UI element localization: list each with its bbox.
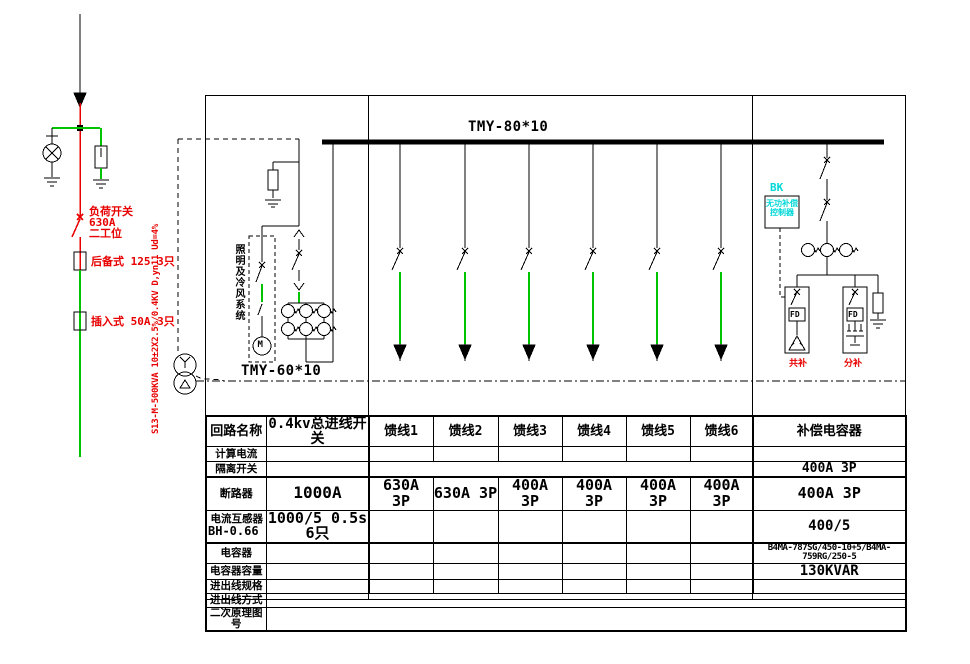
electrical-one-line-diagram: 负荷开关 630A 二工位 后备式 125 3只 插入式 50A 3只 S13-…: [0, 0, 970, 664]
incoming-main-line: [265, 139, 299, 226]
table-cell: 馈线2: [433, 416, 498, 447]
table-cell: 400A 3P: [753, 462, 906, 477]
isolator-switch-icon: [820, 161, 827, 179]
table-cell: [626, 447, 690, 462]
table-cell: 补偿电容器: [753, 416, 906, 447]
table-cell: [369, 462, 753, 477]
table-row-isolator: 隔离开关 400A 3P: [206, 462, 906, 477]
table-cell: [369, 447, 433, 462]
table-cell: B4MA-787SG/450-10+5/B4MA-759RG/250-5: [753, 543, 906, 563]
table-row-line-spec: 进出线规格: [206, 579, 906, 593]
dashed-links: [178, 139, 905, 381]
switch-icon: [256, 266, 262, 282]
hv-load-switch-icon: [72, 131, 83, 270]
table-cell: [753, 579, 906, 593]
motor-label: M: [258, 340, 263, 350]
table-cell: 馈线5: [626, 416, 690, 447]
table-row-capacitor: 电容器 B4MA-787SG/450-10+5/B4MA-759RG/250-5: [206, 543, 906, 563]
table-cell: [626, 543, 690, 563]
table-cell: [498, 543, 562, 563]
table-cell: 馈线3: [498, 416, 562, 447]
ground-icon: [44, 178, 60, 186]
table-cell: 400A 3P: [690, 477, 753, 510]
table-row-capacity: 电容器容量 130KVAR: [206, 563, 906, 579]
table-cell: [690, 447, 753, 462]
transformer-icon: [174, 354, 196, 394]
surge-arrester-branch: [93, 128, 109, 188]
table-cell: [562, 543, 626, 563]
feeder-circuit-6: [713, 144, 727, 361]
split-capacitor-icon: [846, 324, 864, 345]
hv-incoming-line: [52, 14, 100, 131]
feeder-circuit-5: [649, 144, 663, 361]
table-cell: 400A 3P: [498, 477, 562, 510]
metering-ct-group-icon: [282, 144, 337, 362]
row-label: 隔离开关: [206, 462, 266, 477]
row-label: 二次原理图号: [206, 607, 266, 631]
table-cell: [433, 563, 498, 579]
fuse-backup-label: 后备式 125 3只: [91, 253, 175, 269]
capacitor-pt-branch: [870, 275, 886, 328]
table-cell: [690, 563, 753, 579]
fuse-plugin-label: 插入式 50A 3只: [91, 313, 175, 329]
row-label: 电容器容量: [206, 563, 266, 579]
breaker-switch-icon: [820, 203, 827, 221]
table-cell: [433, 543, 498, 563]
table-cell: [690, 579, 753, 593]
row-label: 回路名称: [206, 416, 266, 447]
table-row-secondary-drawing: 二次原理图号: [206, 607, 906, 631]
table-row-circuit-name: 回路名称 0.4kv总进线开关 馈线1 馈线2 馈线3 馈线4 馈线5 馈线6 …: [206, 416, 906, 447]
table-cell: [433, 579, 498, 593]
controller-tag: BK: [770, 181, 783, 194]
table-cell: [626, 510, 690, 543]
main-busbar-label: TMY-80*10: [468, 119, 548, 135]
table-cell: 630A 3P: [433, 477, 498, 510]
table-row-calc-current: 计算电流: [206, 447, 906, 462]
table-cell: [498, 563, 562, 579]
feeder-circuit-4: [585, 144, 599, 361]
table-row-ct: 电流互感器 BH-0.66 1000/5 0.5s 6只 400/5: [206, 510, 906, 543]
row-label: 断路器: [206, 477, 266, 510]
contactor-label: FD: [848, 310, 858, 319]
table-cell: [369, 510, 433, 543]
table-cell: [266, 543, 369, 563]
incoming-busbar-label: TMY-60*10: [241, 363, 321, 379]
row-label: 计算电流: [206, 447, 266, 462]
table-cell: [369, 563, 433, 579]
delta-capacitor-icon: [789, 336, 805, 350]
table-cell: [690, 543, 753, 563]
table-cell: [266, 579, 369, 593]
table-cell: [433, 510, 498, 543]
table-cell: 400A 3P: [753, 477, 906, 510]
table-cell: [562, 447, 626, 462]
table-cell: [266, 593, 906, 607]
table-cell: 馈线4: [562, 416, 626, 447]
table-cell: 1000/5 0.5s 6只: [266, 510, 369, 543]
table-cell: 630A 3P: [369, 477, 433, 510]
voltage-indicator-branch: [43, 128, 61, 186]
table-cell: [562, 510, 626, 543]
fuse-icon: [873, 293, 883, 313]
transformer-spec-label: S13-M-500KVA 10±2X2.5%/0.4KV D,yn11 Ud=4…: [151, 224, 161, 434]
feeder-circuit-3: [521, 144, 535, 361]
ground-icon: [93, 180, 109, 188]
table-cell: 0.4kv总进线开关: [266, 416, 369, 447]
table-cell: [266, 563, 369, 579]
table-cell: 400/5: [753, 510, 906, 543]
table-cell: [369, 579, 433, 593]
feeder-circuit-1: [392, 144, 406, 361]
ground-icon: [870, 320, 886, 328]
table-cell: [562, 579, 626, 593]
row-label: 电流互感器 BH-0.66: [206, 510, 266, 543]
capacitor-feeder-line: [797, 144, 878, 275]
lighting-fan-branch: [249, 226, 299, 362]
table-row-line-mode: 进出线方式: [206, 593, 906, 607]
fuse-plugin-icon: [74, 270, 86, 457]
controller-name-line2: 控制器: [766, 208, 798, 217]
table-cell: [266, 607, 906, 631]
table-cell: [626, 579, 690, 593]
table-row-breaker: 断路器 1000A 630A 3P 630A 3P 400A 3P 400A 3…: [206, 477, 906, 510]
table-cell: [433, 447, 498, 462]
table-cell: [498, 510, 562, 543]
table-cell: 馈线6: [690, 416, 753, 447]
lighting-fan-branch-label: 照明及冷风系统: [231, 244, 246, 356]
table-cell: 1000A: [266, 477, 369, 510]
pt-fuse-icon: [268, 170, 278, 190]
table-cell: [753, 447, 906, 462]
row-label: 进出线方式: [206, 593, 266, 607]
table-cell: 馈线1: [369, 416, 433, 447]
table-cell: [690, 510, 753, 543]
table-cell: [498, 579, 562, 593]
feeder-circuit-2: [457, 144, 471, 361]
table-cell: [626, 563, 690, 579]
table-cell: 130KVAR: [753, 563, 906, 579]
spec-table: 回路名称 0.4kv总进线开关 馈线1 馈线2 馈线3 馈线4 馈线5 馈线6 …: [205, 415, 907, 632]
split-branch-label: 分补: [844, 356, 862, 369]
controller-name-line1: 无功补偿: [766, 199, 798, 208]
load-switch-type: 二工位: [89, 228, 133, 239]
table-cell: 400A 3P: [562, 477, 626, 510]
row-label: 电容器: [206, 543, 266, 563]
table-cell: [266, 447, 369, 462]
row-label: 进出线规格: [206, 579, 266, 593]
ct-label-line2: BH-0.66: [208, 525, 266, 538]
table-cell: [266, 462, 369, 477]
ground-icon: [265, 200, 281, 207]
delta-branch-label: 共补: [789, 356, 807, 369]
table-cell: [562, 563, 626, 579]
table-cell: [369, 543, 433, 563]
table-cell: [498, 447, 562, 462]
table-cell: 400A 3P: [626, 477, 690, 510]
contactor-label: FD: [790, 310, 800, 319]
incoming-breaker-icon: [292, 230, 304, 303]
